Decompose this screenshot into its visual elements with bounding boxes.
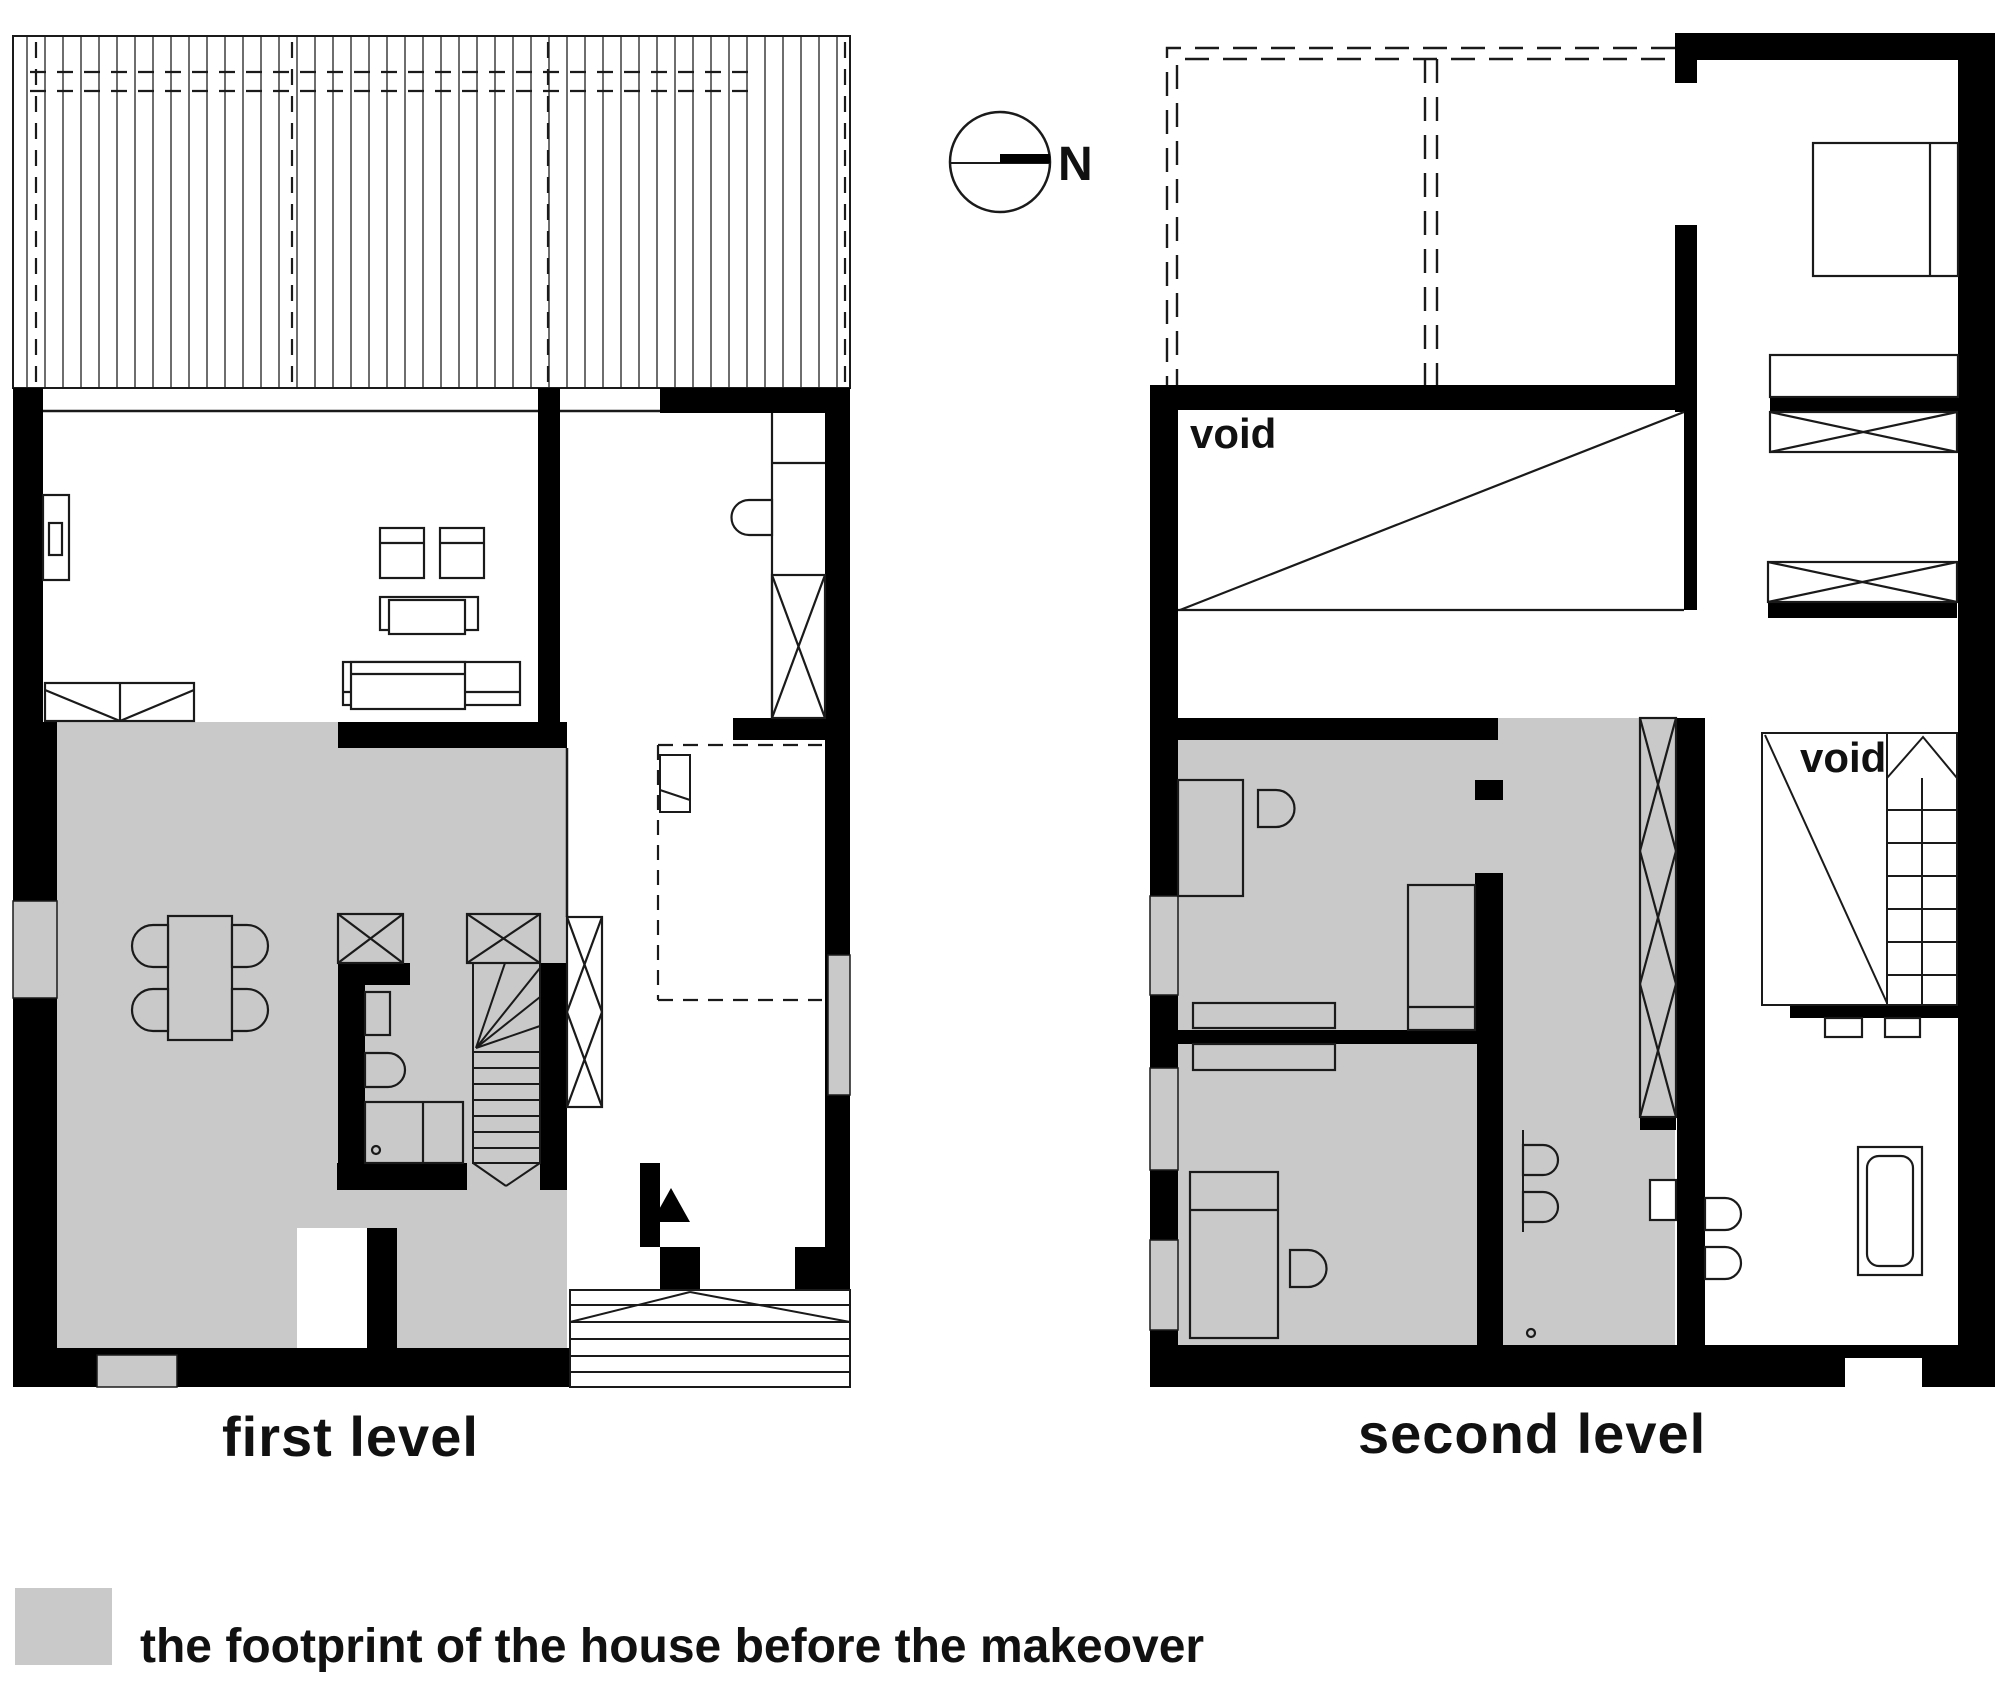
plans-drawing: void void [0, 0, 2000, 1693]
closet-x [1768, 562, 1957, 602]
desk [1178, 780, 1243, 896]
vanity [1885, 1018, 1920, 1037]
shower-tray [1650, 1180, 1676, 1220]
dashed-outline [658, 745, 822, 1000]
legend: the footprint of the house before the ma… [15, 1588, 1204, 1673]
chair [132, 989, 168, 1031]
hall-closet [732, 413, 826, 718]
void-stair-label: void [1800, 734, 1886, 781]
chair [1258, 790, 1295, 827]
entry-area [570, 745, 850, 1387]
sideboard [45, 683, 194, 721]
tv-cabinet [43, 495, 69, 580]
chair [232, 989, 268, 1031]
floor-plan-sheet: void void [0, 0, 2000, 1693]
legend-swatch [15, 1588, 112, 1665]
second-level-plan: void void [1150, 33, 1995, 1387]
toilet [365, 1053, 405, 1087]
roof-hatch-area [13, 36, 850, 388]
north-label: N [1058, 138, 1093, 191]
armchair [440, 528, 484, 578]
second-level-title: second level [1358, 1402, 1706, 1465]
sink [1705, 1247, 1741, 1279]
closet-x [1770, 412, 1957, 452]
bed [1813, 143, 1958, 276]
terrace-dashed-outline [1167, 48, 1675, 385]
wc-sink [365, 992, 390, 1035]
legend-label: the footprint of the house before the ma… [140, 1620, 1204, 1673]
toilet [1523, 1192, 1558, 1222]
chair [1290, 1250, 1327, 1287]
bathtub [1858, 1147, 1922, 1275]
dresser [1770, 355, 1958, 397]
dining-table [168, 916, 232, 1040]
chair [232, 925, 268, 967]
bedroom-top-right [1768, 143, 1958, 602]
toilet [732, 500, 773, 535]
void-upper-label: void [1190, 410, 1276, 457]
north-arrow-icon: N [950, 112, 1093, 212]
chair [132, 925, 168, 967]
wall-niche [660, 755, 690, 812]
washroom [1705, 1018, 1922, 1279]
tall-closet-x [567, 917, 602, 1107]
first-level-plan [13, 36, 850, 1387]
sink [1705, 1198, 1741, 1230]
living-room-furniture [43, 495, 520, 721]
first-level-title: first level [222, 1405, 479, 1468]
kitchen-counter [351, 600, 465, 709]
armchair [380, 528, 424, 578]
entry-steps [570, 1290, 850, 1387]
toilet [1523, 1145, 1558, 1175]
vanity [1825, 1018, 1862, 1037]
